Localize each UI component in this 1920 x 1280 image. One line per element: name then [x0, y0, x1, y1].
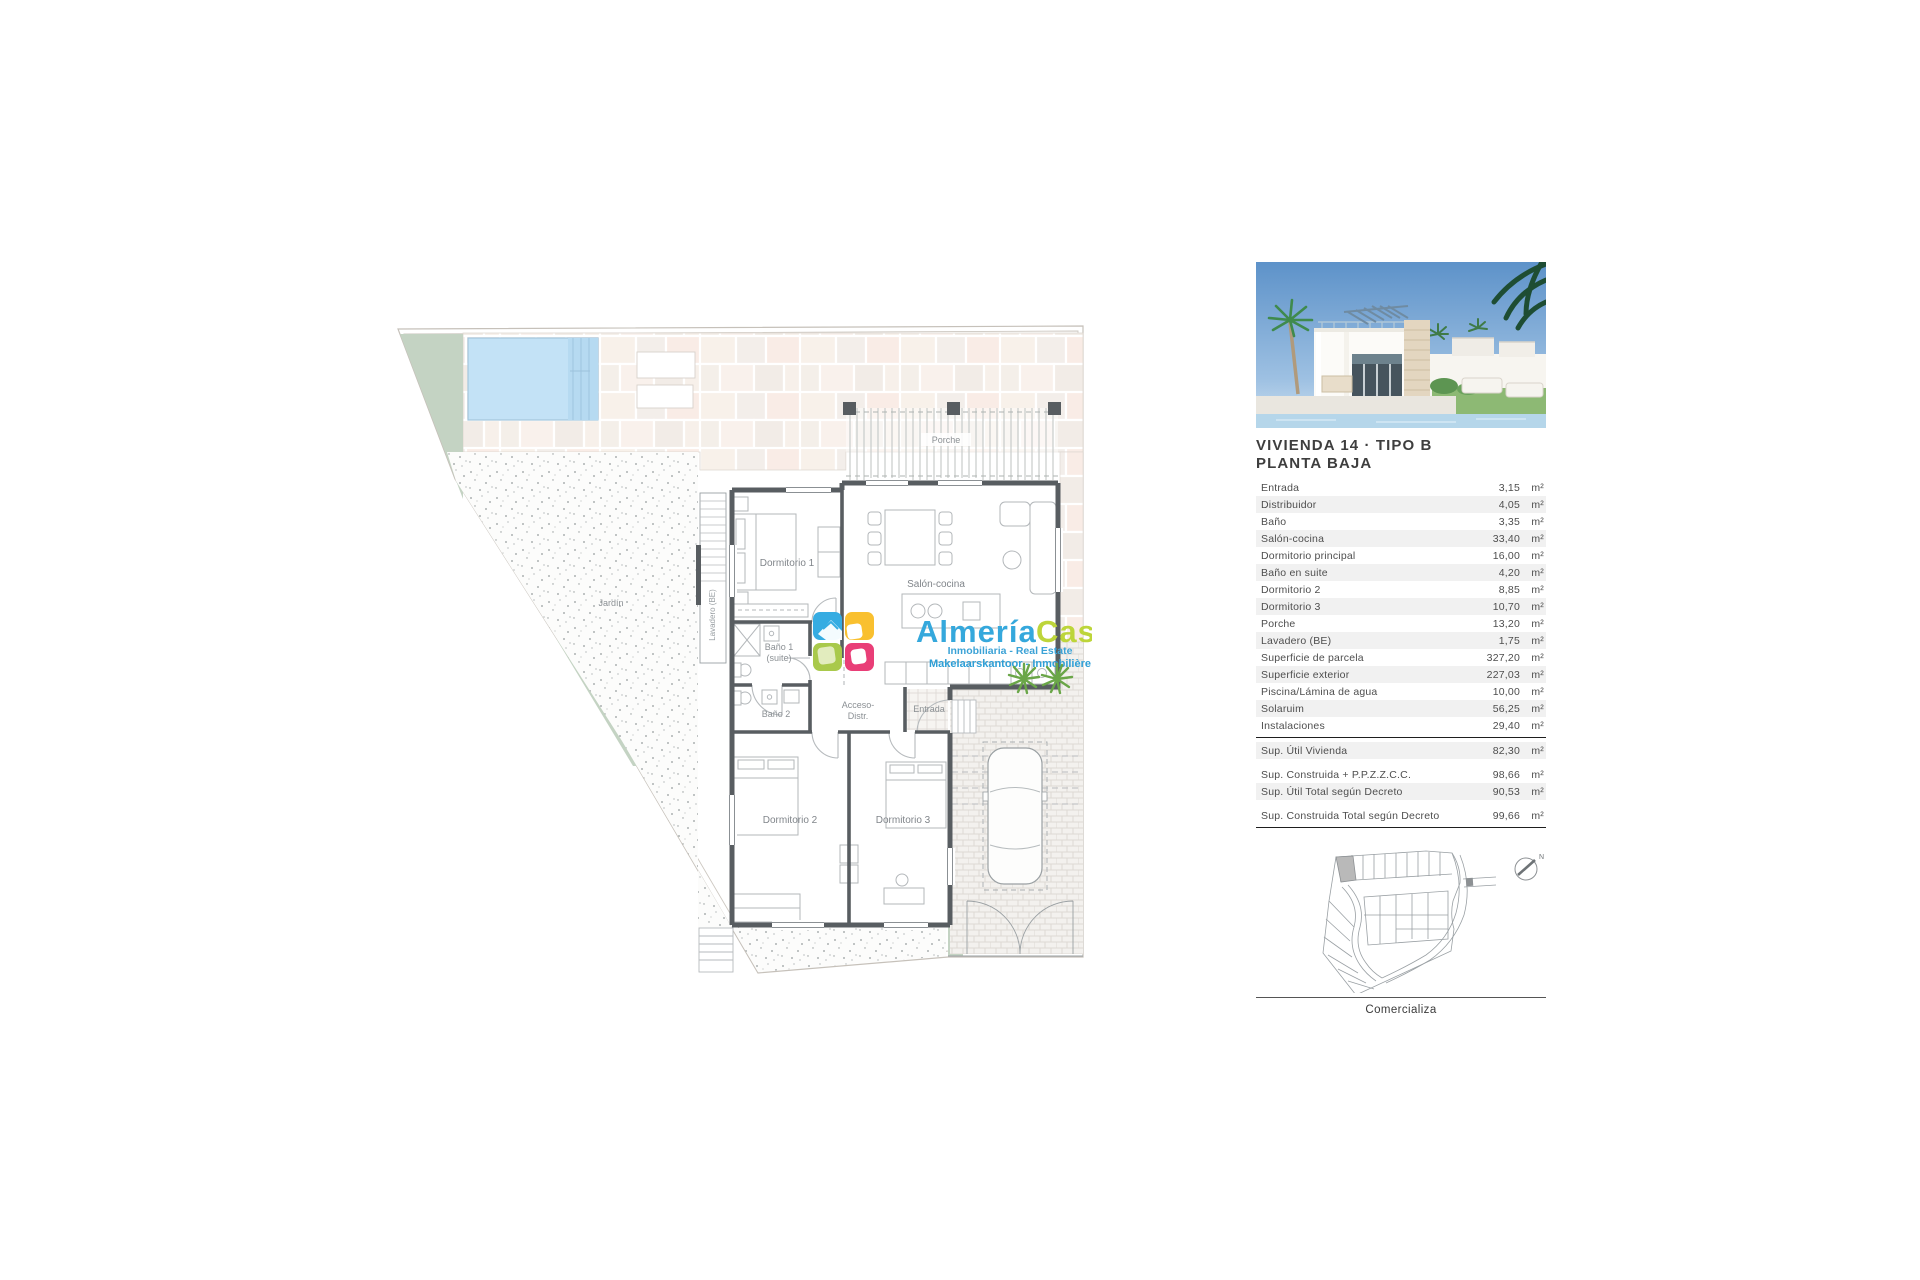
table-row: Salón-cocina33,40m²: [1256, 530, 1546, 547]
table-row-summary: Sup. Construida + P.P.Z.Z.C.C.98,66m²: [1256, 766, 1546, 783]
table-row: Lavadero (BE)1,75m²: [1256, 632, 1546, 649]
surface-table: Entrada3,15m² Distribuidor4,05m² Baño3,3…: [1256, 479, 1546, 828]
table-row: Superficie de parcela327,20m²: [1256, 649, 1546, 666]
comercializa-label: Comercializa: [1256, 1004, 1546, 1016]
table-row: Instalaciones29,40m²: [1256, 717, 1546, 734]
villa-photo: [1256, 262, 1546, 428]
laundry-strip: Lavadero (BE): [696, 493, 726, 663]
entry-steps: [952, 700, 976, 733]
unit-title-line2: PLANTA BAJA: [1256, 455, 1546, 473]
pool: [468, 338, 598, 420]
table-row-summary: Sup. Útil Vivienda82,30m²: [1256, 742, 1546, 759]
table-row: Porche13,20m²: [1256, 615, 1546, 632]
table-row: Piscina/Lámina de agua10,00m²: [1256, 683, 1546, 700]
table-row: Baño3,35m²: [1256, 513, 1546, 530]
table-row: Dormitorio 310,70m²: [1256, 598, 1546, 615]
svg-text:N: N: [1539, 854, 1544, 861]
floor-plan: Jardín Porche Lavadero (BE: [388, 316, 1092, 982]
brand-tagline-1: Inmobiliaria - Real Estate: [948, 645, 1073, 657]
table-row: Superficie exterior227,03m²: [1256, 666, 1546, 683]
site-plan: N: [1256, 843, 1546, 993]
table-row: Dormitorio principal16,00m²: [1256, 547, 1546, 564]
table-row: Distribuidor4,05m²: [1256, 496, 1546, 513]
divider: [1256, 997, 1546, 998]
info-panel: VIVIENDA 14 · TIPO B PLANTA BAJA Entrada…: [1256, 262, 1546, 1016]
laundry-label: Lavadero (BE): [708, 589, 717, 641]
north-compass-icon: N: [1515, 854, 1544, 880]
room-label-bano2: Baño 2: [762, 709, 791, 719]
room-label-salon: Salón-cocina: [907, 579, 965, 590]
unit-title-line1: VIVIENDA 14 · TIPO B: [1256, 437, 1546, 455]
brand-name-1: Almería: [916, 614, 1037, 649]
garden-steps: [699, 928, 733, 972]
porch-label: Porche: [932, 435, 961, 445]
room-label-dormitorio2: Dormitorio 2: [763, 815, 818, 826]
table-row: Entrada3,15m²: [1256, 479, 1546, 496]
room-label-entrada: Entrada: [913, 704, 945, 714]
table-row: Dormitorio 28,85m²: [1256, 581, 1546, 598]
divider: [1256, 827, 1546, 828]
table-row: Solaruim56,25m²: [1256, 700, 1546, 717]
brand-name-2: Casas: [1036, 614, 1092, 649]
room-label-bano1: Baño 1: [765, 642, 794, 652]
garden-label: Jardín: [598, 598, 623, 608]
room-label-dormitorio1: Dormitorio 1: [760, 558, 815, 569]
porch: Porche: [843, 402, 1061, 480]
car: [983, 748, 1047, 884]
table-row-summary: Sup. Útil Total según Decreto90,53m²: [1256, 783, 1546, 800]
table-row: Baño en suite4,20m²: [1256, 564, 1546, 581]
table-row-summary: Sup. Construida Total según Decreto99,66…: [1256, 807, 1546, 824]
room-label-dormitorio3: Dormitorio 3: [876, 815, 931, 826]
room-label-acceso-2: Distr.: [848, 711, 869, 721]
room-label-bano1-suite: (suite): [766, 653, 791, 663]
room-label-acceso-1: Acceso-: [842, 700, 875, 710]
